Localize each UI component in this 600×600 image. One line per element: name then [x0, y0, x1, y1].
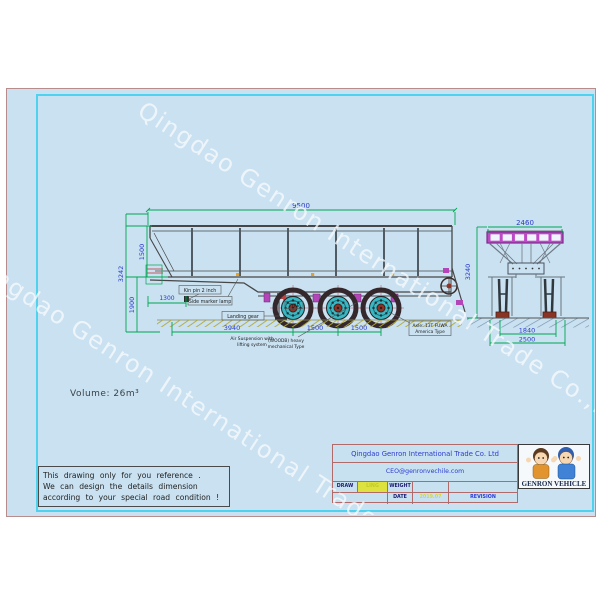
logo-box: GENRON VEHICLE: [518, 444, 590, 489]
note-line-1: This drawing only for you reference .: [43, 470, 225, 481]
logo-text: GENRON VEHICLE: [519, 480, 589, 488]
title-block-row3: DRAW LING WEIGHT: [333, 482, 517, 493]
date-label: DATE: [388, 493, 413, 504]
company-name: Qingdao Genron International Trade Co. L…: [333, 445, 517, 463]
note-line-3: according to your special road condition…: [43, 492, 225, 503]
note-line-2: We can design the details dimension: [43, 481, 225, 492]
logo-mascots-icon: [519, 445, 589, 481]
draw-value: LING: [358, 482, 388, 492]
company-email: CEO@genronvechile.com: [333, 463, 517, 482]
note-box: This drawing only for you reference . We…: [38, 466, 230, 507]
title-block-row4: DATE 2019.07 REVISION: [333, 493, 517, 504]
title-block: Qingdao Genron International Trade Co. L…: [332, 444, 518, 503]
drawing-page: 9500 3242 1500 1900 1300 3940 1500 1500 …: [0, 0, 600, 600]
volume-label: Volume: 26m³: [70, 389, 139, 399]
row4-empty-cell: [333, 493, 388, 504]
row3-empty-cell: [449, 482, 517, 492]
weight-label: WEIGHT: [388, 482, 413, 492]
revision-label: REVISION: [449, 493, 517, 504]
draw-label: DRAW: [333, 482, 358, 492]
date-value: 2019.07: [413, 493, 449, 504]
weight-value-empty: [413, 482, 449, 492]
